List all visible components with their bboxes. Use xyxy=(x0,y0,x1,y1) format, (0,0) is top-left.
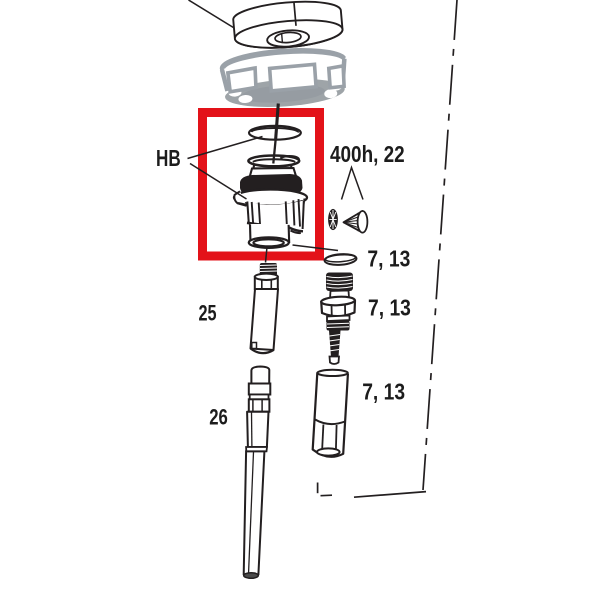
svg-text:7, 13: 7, 13 xyxy=(367,245,410,271)
svg-text:HB: HB xyxy=(156,145,181,171)
svg-text:26: 26 xyxy=(209,405,228,430)
svg-text:400h, 22: 400h, 22 xyxy=(330,141,405,167)
svg-text:7, 13: 7, 13 xyxy=(362,378,405,404)
svg-text:25: 25 xyxy=(199,300,217,325)
svg-text:7, 13: 7, 13 xyxy=(368,295,411,321)
